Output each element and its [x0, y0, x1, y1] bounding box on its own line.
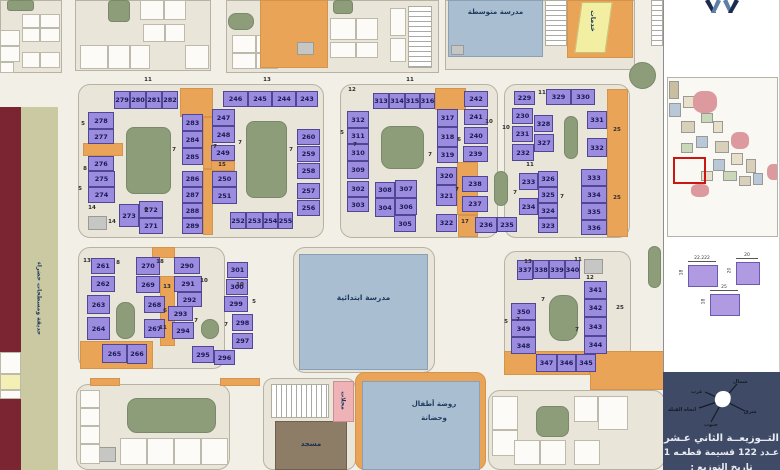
cell	[514, 440, 540, 465]
plot-287: 287	[182, 187, 203, 203]
orange	[90, 378, 120, 386]
dimension-label: 7	[575, 327, 579, 333]
school	[362, 381, 480, 470]
plot-284: 284	[182, 131, 203, 148]
dimension-label: 7	[224, 322, 228, 328]
plot-253: 253	[246, 212, 263, 229]
plot-323: 323	[538, 218, 558, 233]
park	[126, 127, 171, 194]
dimension-label: 13	[163, 284, 171, 290]
plot-277: 277	[88, 129, 114, 144]
plot-268: 268	[144, 296, 165, 313]
plot-278: 278	[88, 112, 114, 129]
lot1-shape	[688, 265, 718, 287]
dimension-label: 5	[504, 319, 508, 325]
compass-east-label: شرق	[744, 409, 757, 415]
cell	[574, 440, 600, 465]
dimension-label: 7	[455, 187, 459, 193]
dimension-label: 12	[586, 275, 594, 281]
dimension-label: 7	[353, 142, 357, 148]
compass-west-label: غرب	[691, 389, 703, 395]
plot-327: 327	[534, 134, 554, 152]
dimension-label: 10	[485, 119, 493, 125]
hatch-v	[271, 384, 329, 418]
plot-306: 306	[395, 198, 417, 215]
location-inset-map	[667, 77, 778, 237]
cell	[0, 46, 20, 62]
gray	[297, 42, 314, 55]
compass-south-label: جنوب	[704, 422, 718, 428]
plot-273: 273	[119, 204, 139, 227]
inset-block	[713, 159, 725, 171]
plot-248: 248	[212, 126, 235, 143]
cell	[492, 396, 518, 430]
plot-258: 258	[297, 163, 320, 179]
inset-block	[713, 121, 723, 133]
plot-275: 275	[88, 171, 115, 187]
plot-252: 252	[230, 212, 246, 229]
compass-qibla-label: اتجاه القبلة	[668, 407, 696, 413]
plot-344: 344	[584, 336, 607, 354]
plot-294: 294	[172, 322, 194, 339]
plot-325: 325	[538, 187, 558, 203]
plot-274: 274	[88, 187, 115, 203]
lot2-width-label: 20	[736, 253, 758, 259]
plot-293: 293	[168, 306, 193, 321]
plot-297: 297	[232, 333, 253, 349]
plot-317: 317	[437, 109, 458, 127]
plot-322: 322	[436, 214, 457, 232]
dimension-label: 14	[108, 219, 116, 225]
plot-244: 244	[272, 91, 296, 107]
inset-block	[715, 141, 729, 153]
plot-349: 349	[511, 320, 536, 337]
plot-339: 339	[549, 260, 565, 279]
inset-roundabout	[691, 184, 709, 197]
plot-314: 314	[389, 93, 405, 109]
plot-319: 319	[437, 147, 458, 163]
plot-301: 301	[227, 262, 248, 278]
cell	[390, 8, 406, 36]
plot-303: 303	[347, 197, 369, 212]
plot-233: 233	[519, 173, 538, 190]
plot-232: 232	[512, 144, 534, 161]
compass-north-label: شمال	[733, 379, 748, 385]
dimension-label: 13	[524, 259, 532, 265]
authority-logo-icon	[699, 0, 745, 13]
plot-345: 345	[576, 354, 596, 372]
cell	[0, 62, 14, 73]
cell	[80, 426, 100, 444]
plot-330: 330	[571, 89, 595, 105]
dimension-label: 18	[156, 259, 164, 265]
cell	[147, 438, 174, 465]
dimension-label: 17	[461, 219, 469, 225]
plot-255: 255	[278, 212, 293, 229]
inset-block	[681, 143, 693, 153]
plot-347: 347	[536, 354, 557, 372]
lot3-height-label: 18	[701, 299, 706, 305]
plot-333: 333	[581, 169, 607, 186]
cell	[120, 438, 147, 465]
plot-231: 231	[512, 126, 533, 142]
orange	[590, 351, 665, 390]
orange	[260, 0, 328, 68]
dimension-label: 6	[163, 308, 167, 314]
park	[228, 13, 254, 30]
plot-290: 290	[174, 257, 200, 274]
plot-282: 282	[162, 91, 178, 109]
plot-count-line: عـدد 122 قسيمة قطعـه 1	[663, 448, 780, 458]
park	[629, 62, 656, 89]
dimension-label: 11	[406, 77, 414, 83]
cell	[232, 53, 256, 69]
plot-238: 238	[462, 176, 488, 192]
dimension-label: 25	[613, 195, 621, 201]
plot-328: 328	[534, 115, 553, 132]
cell	[201, 438, 228, 465]
inset-block	[681, 121, 695, 133]
dimension-label: 15	[218, 162, 226, 168]
cell	[390, 38, 406, 62]
plot-272: 272	[139, 201, 163, 218]
plot-324: 324	[538, 203, 558, 218]
plot-309: 309	[347, 161, 369, 179]
park	[246, 121, 287, 198]
plot-305: 305	[394, 215, 416, 232]
park	[127, 398, 216, 433]
plot-288: 288	[182, 203, 203, 218]
plot-291: 291	[174, 276, 202, 292]
plot-264: 264	[87, 317, 110, 340]
plot-329: 329	[546, 89, 571, 105]
park	[108, 0, 130, 22]
compass-rose-icon	[693, 378, 753, 428]
plot-229: 229	[514, 91, 535, 105]
cell	[598, 396, 628, 430]
inset-block	[723, 171, 737, 181]
lot2-height-label: 20	[727, 268, 732, 274]
plot-276: 276	[88, 156, 114, 171]
inset-block	[739, 176, 751, 186]
plot-311: 311	[347, 128, 369, 144]
inset-block	[669, 103, 681, 117]
cell	[143, 24, 165, 42]
inset-block	[731, 153, 743, 165]
plot-326: 326	[538, 171, 558, 187]
yellowcell	[0, 374, 21, 390]
plot-302: 302	[347, 181, 369, 197]
plot-286: 286	[182, 171, 203, 187]
plot-269: 269	[136, 276, 160, 293]
cell	[0, 352, 21, 374]
cell	[130, 45, 150, 69]
plot-304: 304	[375, 198, 395, 217]
plot-250: 250	[212, 171, 237, 187]
dimension-label: 12	[348, 87, 356, 93]
plot-315: 315	[405, 93, 420, 109]
cell	[0, 390, 21, 399]
dimension-label: 11	[574, 257, 582, 263]
park	[7, 0, 34, 11]
cell	[22, 52, 40, 68]
cell	[330, 42, 356, 58]
dimension-label: 11	[159, 325, 167, 331]
plot-266: 266	[127, 344, 147, 364]
plot-318: 318	[437, 127, 458, 147]
plot-247: 247	[212, 109, 235, 126]
plot-299: 299	[224, 296, 248, 312]
plot-234: 234	[519, 198, 538, 215]
cell	[330, 18, 356, 40]
dimension-label: 10	[502, 125, 510, 131]
plot-280: 280	[130, 91, 146, 109]
lot2-shape	[736, 262, 760, 285]
plot-243: 243	[296, 91, 318, 107]
plot-261: 261	[91, 258, 115, 274]
services-label: خدمات	[589, 1, 597, 41]
park	[564, 116, 578, 159]
plot-316: 316	[420, 93, 435, 109]
cell	[574, 396, 598, 422]
cell	[40, 14, 60, 28]
cell	[80, 408, 100, 426]
park	[549, 295, 578, 341]
gray	[88, 216, 107, 230]
park	[648, 246, 661, 288]
plot-348: 348	[511, 337, 536, 354]
dimension-label: 6	[144, 207, 148, 213]
plot-335: 335	[581, 203, 607, 220]
dimension-label: 10	[236, 282, 244, 288]
plot-346: 346	[557, 354, 576, 372]
cell	[0, 30, 20, 46]
cell	[174, 438, 201, 465]
park	[116, 302, 135, 339]
gray	[451, 45, 464, 55]
cell	[22, 14, 40, 28]
dimension-label: 7	[172, 147, 176, 153]
dimension-label: 7	[428, 152, 432, 158]
plot-334: 334	[581, 186, 607, 203]
cell	[232, 35, 256, 53]
plot-310: 310	[347, 144, 369, 161]
distribution-title: التــوزيعــة الثاني عـشر	[663, 433, 780, 444]
plot-235: 235	[497, 217, 517, 232]
plot-246: 246	[223, 91, 248, 107]
dimension-label: 7	[289, 147, 293, 153]
plot-251: 251	[212, 187, 237, 204]
dimension-label: 5	[340, 130, 344, 136]
plot-341: 341	[584, 281, 607, 299]
plot-237: 237	[462, 196, 488, 212]
dimension-label: 7	[541, 297, 545, 303]
plot-338: 338	[533, 260, 549, 279]
plot-343: 343	[584, 317, 607, 336]
cell	[40, 28, 60, 42]
plot-296: 296	[214, 350, 235, 365]
dimension-label: 7	[194, 318, 198, 324]
plot-263: 263	[87, 295, 110, 314]
park	[536, 406, 569, 437]
dimension-label: 11	[526, 162, 534, 168]
plot-230: 230	[512, 108, 533, 124]
kindergarten-label-line2: وحضانة	[398, 414, 470, 422]
plot-283: 283	[182, 114, 203, 131]
dimension-label: 11	[538, 90, 546, 96]
hatch-h	[408, 6, 432, 68]
inset-roundabout	[731, 132, 749, 149]
cell	[108, 45, 130, 69]
park	[201, 319, 219, 339]
plot-245: 245	[248, 91, 272, 107]
park	[333, 0, 353, 14]
cell	[80, 45, 108, 69]
plot-350: 350	[511, 303, 536, 320]
cell	[185, 45, 209, 69]
plot-256: 256	[297, 200, 320, 216]
plot-257: 257	[297, 183, 320, 199]
plot-295: 295	[192, 346, 214, 363]
cell	[80, 444, 100, 464]
cell	[80, 390, 100, 408]
dimension-label: 7	[560, 194, 564, 200]
middle-school-label: مدرسة متوسطة	[448, 8, 543, 16]
dimension-label: 6	[457, 137, 461, 143]
orange	[607, 89, 628, 237]
inset-block	[746, 159, 756, 173]
plot-313: 313	[373, 93, 389, 109]
inset-block	[701, 113, 713, 123]
hatch-h	[545, 0, 567, 46]
dimension-label: 25	[613, 127, 621, 133]
inset-block	[696, 136, 708, 148]
plot-271: 271	[139, 218, 163, 234]
cell	[40, 52, 60, 68]
dimension-label: 10	[200, 278, 208, 284]
dimension-label: 7	[213, 144, 217, 150]
plot-342: 342	[584, 299, 607, 317]
plot-308: 308	[375, 182, 395, 198]
cell	[356, 18, 378, 40]
plot-281: 281	[146, 91, 162, 109]
dimension-label: 5	[252, 299, 256, 305]
plot-279: 279	[114, 91, 130, 109]
plot-289: 289	[182, 218, 203, 234]
park	[494, 171, 508, 206]
dimension-label: 7	[238, 140, 242, 146]
plot-292: 292	[177, 292, 202, 307]
plot-285: 285	[182, 148, 203, 165]
plot-260: 260	[297, 129, 320, 145]
lot3-shape	[710, 294, 740, 316]
plot-240: 240	[464, 127, 488, 144]
plot-320: 320	[436, 167, 457, 185]
dimension-label: 7	[516, 317, 520, 323]
plot-236: 236	[475, 217, 497, 233]
plot-331: 331	[587, 111, 607, 129]
plot-259: 259	[297, 146, 320, 162]
dimension-label: 13	[263, 77, 271, 83]
lot1-height-label: 18	[679, 270, 684, 276]
cell	[165, 24, 185, 42]
lot3-width-label: 25	[710, 285, 738, 291]
orange	[180, 88, 213, 117]
shops-label: محلات	[340, 381, 347, 421]
distribution-date-line: تاريخ التوزيع : 25/09/2021	[663, 463, 780, 470]
plot-336: 336	[581, 220, 607, 235]
cell	[164, 0, 186, 20]
plot-242: 242	[464, 91, 488, 107]
inset-block	[753, 173, 763, 185]
park	[381, 126, 424, 169]
orange	[83, 143, 123, 156]
dimension-label: 8	[83, 166, 87, 172]
dimension-label: 25	[616, 305, 624, 311]
cell	[140, 0, 164, 20]
kindergarten-label-line1: روضة أطفال	[398, 400, 470, 408]
plot-332: 332	[587, 138, 607, 157]
plot-321: 321	[436, 185, 457, 206]
inset-highlight-rectangle	[673, 157, 706, 184]
inset-roundabout	[693, 91, 717, 113]
master-plan-map: مدرسة متوسطة خدمات مدرسة ابتدائية روضة أ…	[0, 0, 663, 470]
primary-school-label: مدرسة ابتدائية	[299, 293, 428, 302]
dimension-label: 14	[88, 205, 96, 211]
dimension-label: 13	[83, 258, 91, 264]
cell	[540, 440, 566, 465]
inset-block	[669, 81, 679, 99]
dimension-label: 7	[513, 190, 517, 196]
plot-254: 254	[263, 212, 278, 229]
maroon	[0, 107, 21, 470]
plot-262: 262	[91, 276, 115, 292]
dimension-label: 11	[144, 77, 152, 83]
dimension-label: 5	[81, 121, 85, 127]
plot-307: 307	[395, 180, 417, 198]
plot-265: 265	[102, 344, 127, 363]
cell	[356, 42, 378, 58]
site-plan-page: مدرسة متوسطة خدمات مدرسة ابتدائية روضة أ…	[0, 0, 780, 470]
dimension-label: 5	[78, 186, 82, 192]
plot-239: 239	[463, 146, 488, 162]
orange	[220, 378, 260, 386]
dimension-label: 8	[116, 260, 120, 266]
hatch-h	[651, 0, 663, 46]
lot1-width-label: 22.222	[688, 256, 716, 262]
green-strip-label: حديقة ومسطحات خضراء	[36, 259, 43, 339]
gray	[584, 259, 603, 274]
plot-312: 312	[347, 111, 369, 128]
mosque-label: مسجد	[275, 440, 347, 448]
school	[299, 254, 428, 370]
cell	[22, 28, 40, 42]
plot-298: 298	[232, 314, 253, 331]
inset-roundabout	[767, 164, 778, 180]
orange	[435, 88, 466, 110]
